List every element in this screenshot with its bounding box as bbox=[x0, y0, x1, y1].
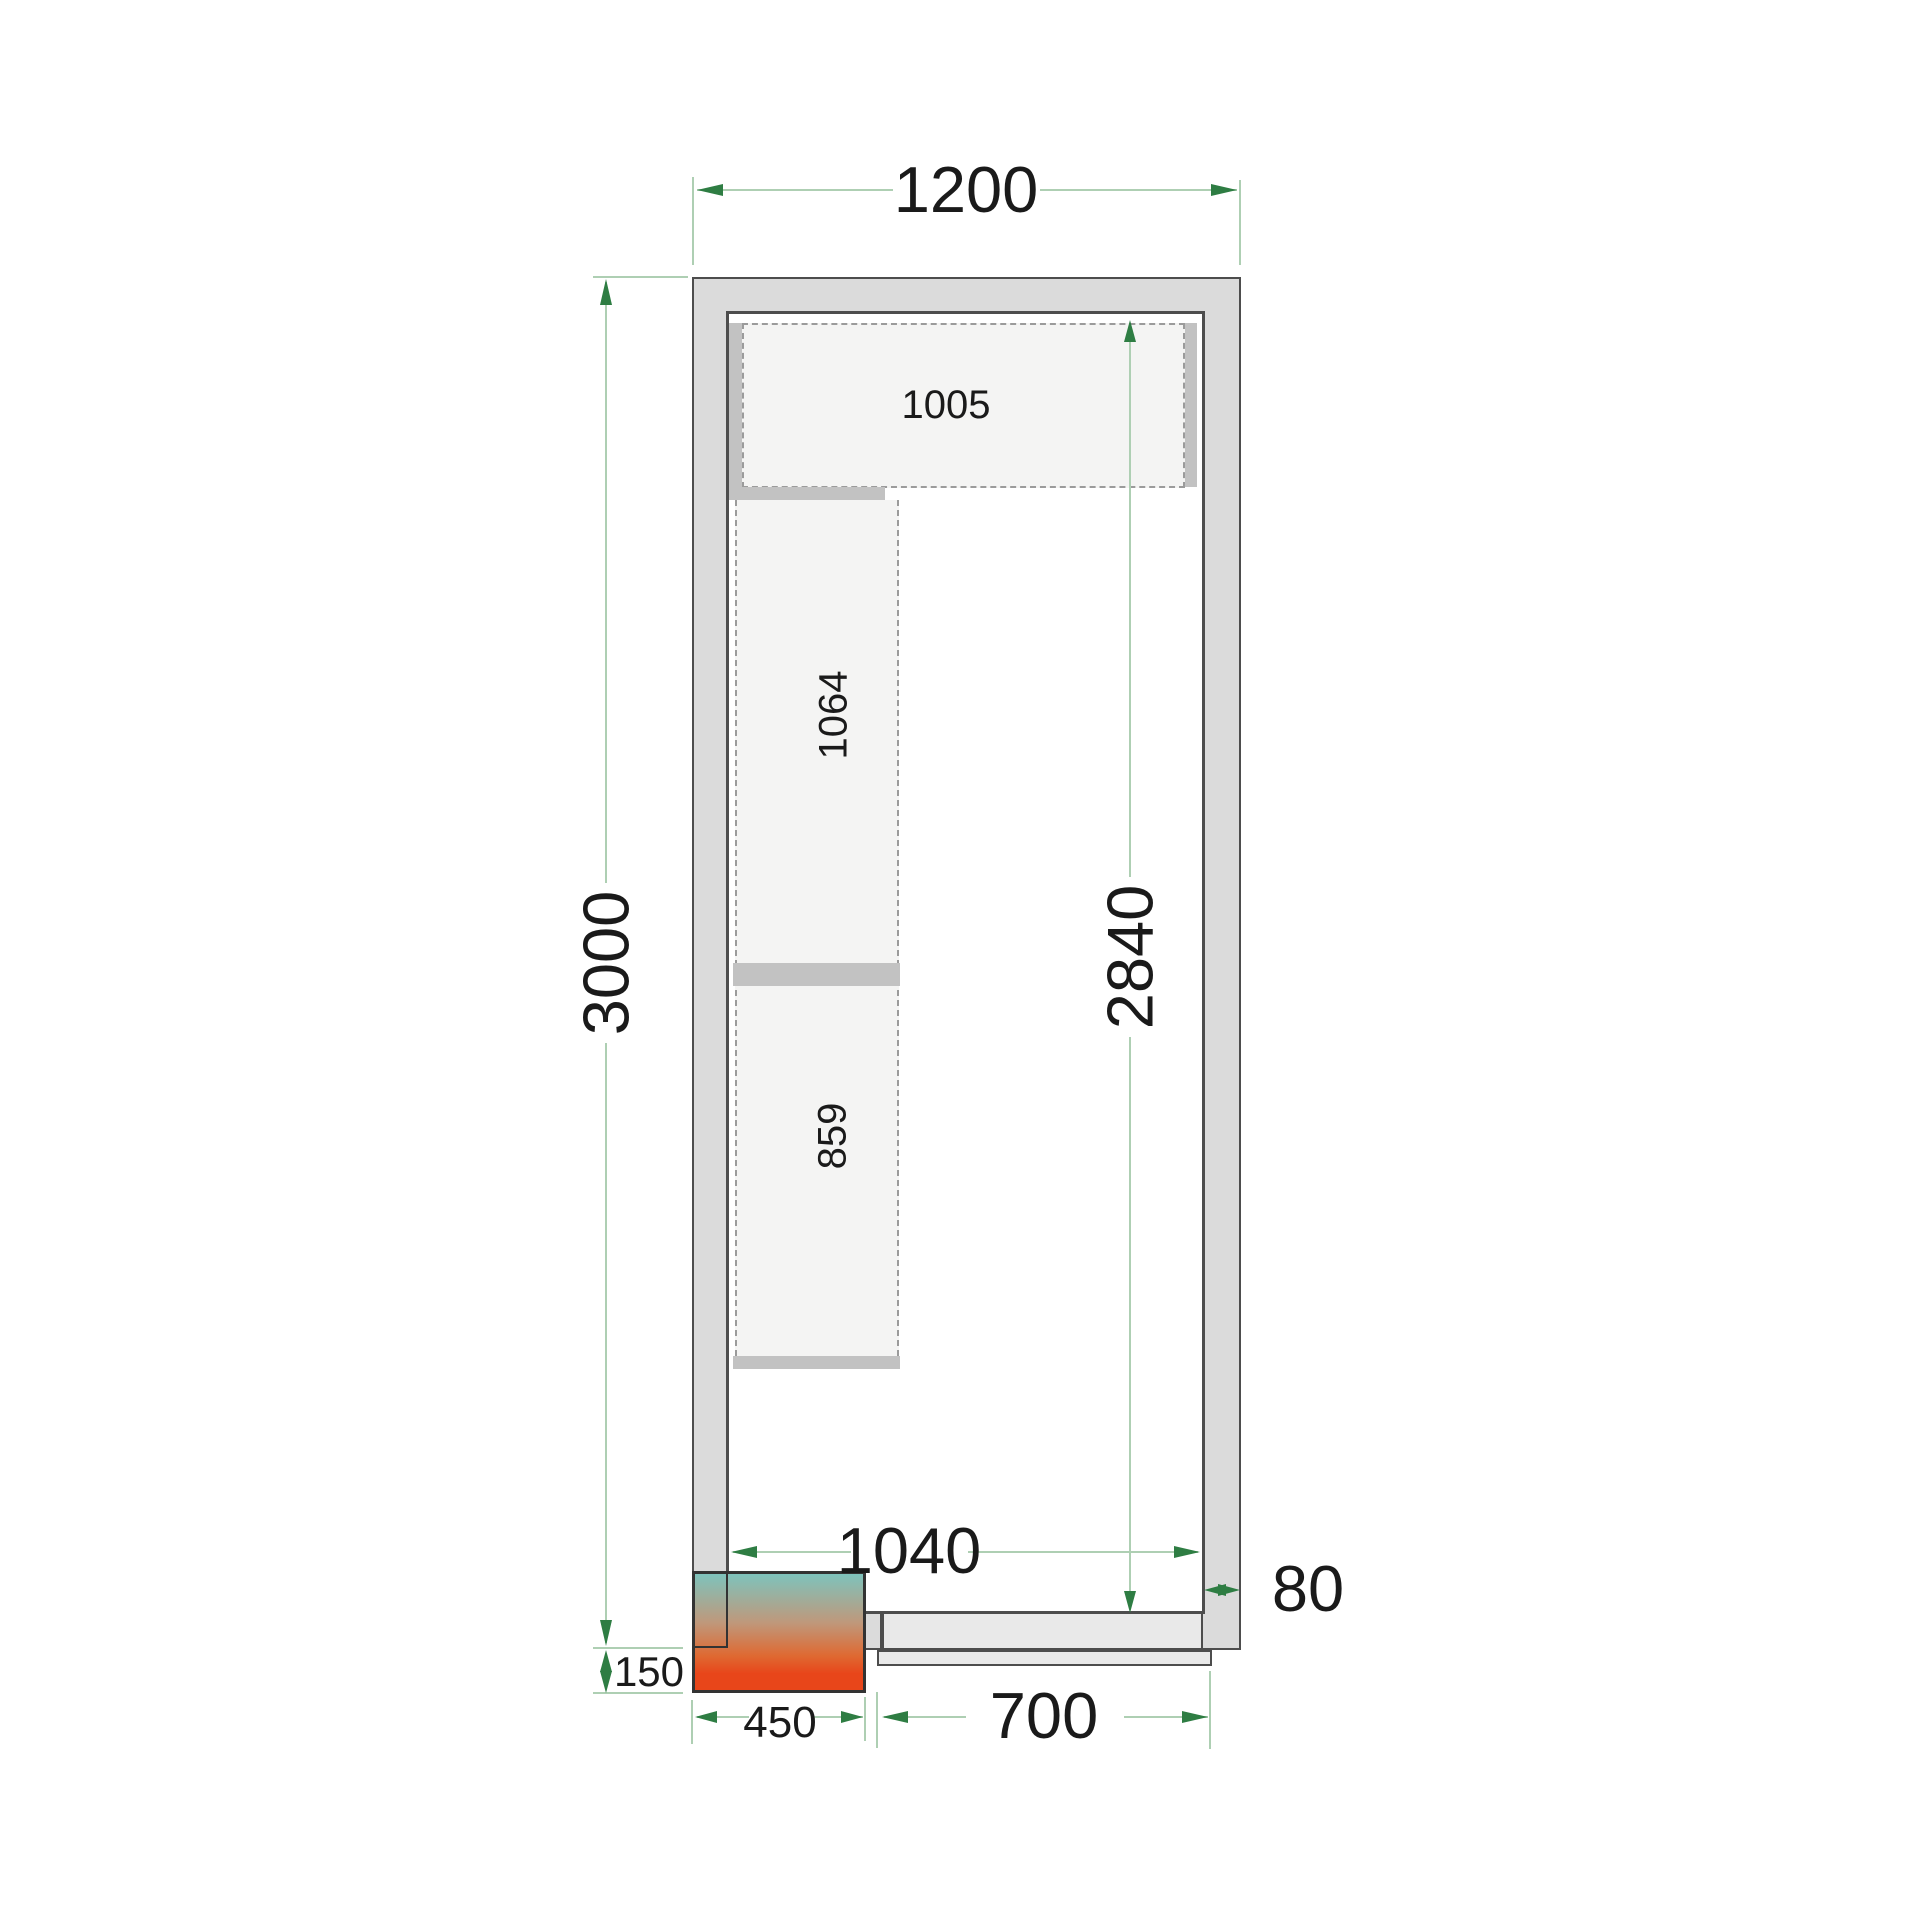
floor-plan-canvas: 1005 1064 859 1200 3000 2840 1040 bbox=[0, 0, 1920, 1920]
top-shelf-left-bracket bbox=[729, 323, 742, 487]
dim-700-ext-left bbox=[876, 1692, 878, 1748]
left-shelf-lower-label-wrap: 859 bbox=[752, 1056, 912, 1216]
door-leaf bbox=[882, 1612, 1203, 1650]
dim-1040-label: 1040 bbox=[819, 1518, 999, 1584]
dim-3000-arrow-down bbox=[600, 1620, 612, 1646]
dim-1040-arrow-left bbox=[731, 1546, 757, 1558]
dim-3000-line-bottom bbox=[605, 1043, 607, 1643]
dim-700-arrow-left bbox=[882, 1711, 908, 1723]
dim-150-label: 150 bbox=[611, 1650, 687, 1693]
left-shelf-lower-label: 859 bbox=[810, 1103, 854, 1170]
dim-450-arrow-left bbox=[695, 1711, 717, 1723]
dim-2840-line-bottom bbox=[1129, 1037, 1131, 1591]
dim-80-label: 80 bbox=[1248, 1556, 1368, 1622]
left-shelf-middle-bracket bbox=[733, 963, 900, 986]
dim-450-ext-left bbox=[691, 1700, 693, 1744]
dim-2840-arrow-down bbox=[1124, 1591, 1136, 1613]
dim-1040-line-right bbox=[968, 1551, 1198, 1553]
left-shelf-upper-label-wrap: 1064 bbox=[753, 635, 913, 795]
dim-2840-arrow-up bbox=[1124, 320, 1136, 342]
dim-2840-line-top bbox=[1129, 325, 1131, 877]
top-shelf-right-bracket bbox=[1185, 323, 1197, 487]
dim-450-label: 450 bbox=[723, 1700, 837, 1745]
dim-700-label: 700 bbox=[954, 1683, 1134, 1749]
dim-700-arrow-right bbox=[1182, 1711, 1208, 1723]
left-shelf-bottom-bracket bbox=[733, 1356, 900, 1369]
door-outer-lip bbox=[877, 1650, 1212, 1666]
dim-1040-arrow-right bbox=[1174, 1546, 1200, 1558]
dim-1200-ext-right bbox=[1239, 180, 1241, 265]
dim-450-ext-right bbox=[864, 1697, 866, 1741]
dim-700-ext-right bbox=[1209, 1671, 1211, 1749]
cooling-unit-wall-overlap-outline bbox=[692, 1571, 728, 1648]
dim-3000-line-top bbox=[605, 282, 607, 883]
dim-2840-label: 2840 bbox=[1097, 885, 1163, 1030]
left-shelf-upper-label: 1064 bbox=[811, 671, 855, 760]
dim-80-arrow-right bbox=[1218, 1584, 1240, 1596]
dim-3000-label: 3000 bbox=[573, 891, 639, 1036]
dim-1200-line-right bbox=[1040, 189, 1237, 191]
dim-1200-arrow-left bbox=[697, 184, 723, 196]
dim-450-arrow-right bbox=[841, 1711, 863, 1723]
dim-1200-ext-left bbox=[692, 177, 694, 265]
dim-3000-arrow-up bbox=[600, 279, 612, 305]
dim-3000-label-wrap: 3000 bbox=[526, 883, 686, 1043]
dim-1200-arrow-right bbox=[1211, 184, 1237, 196]
left-shelf-top-bracket bbox=[729, 487, 885, 500]
dim-3000-ext-top bbox=[593, 276, 688, 278]
top-shelf-label: 1005 bbox=[866, 383, 1026, 427]
dim-1200-line-left bbox=[697, 189, 893, 191]
dim-1200-label: 1200 bbox=[876, 157, 1056, 223]
left-shelf-area bbox=[735, 500, 899, 1356]
dim-2840-label-wrap: 2840 bbox=[1050, 877, 1210, 1037]
